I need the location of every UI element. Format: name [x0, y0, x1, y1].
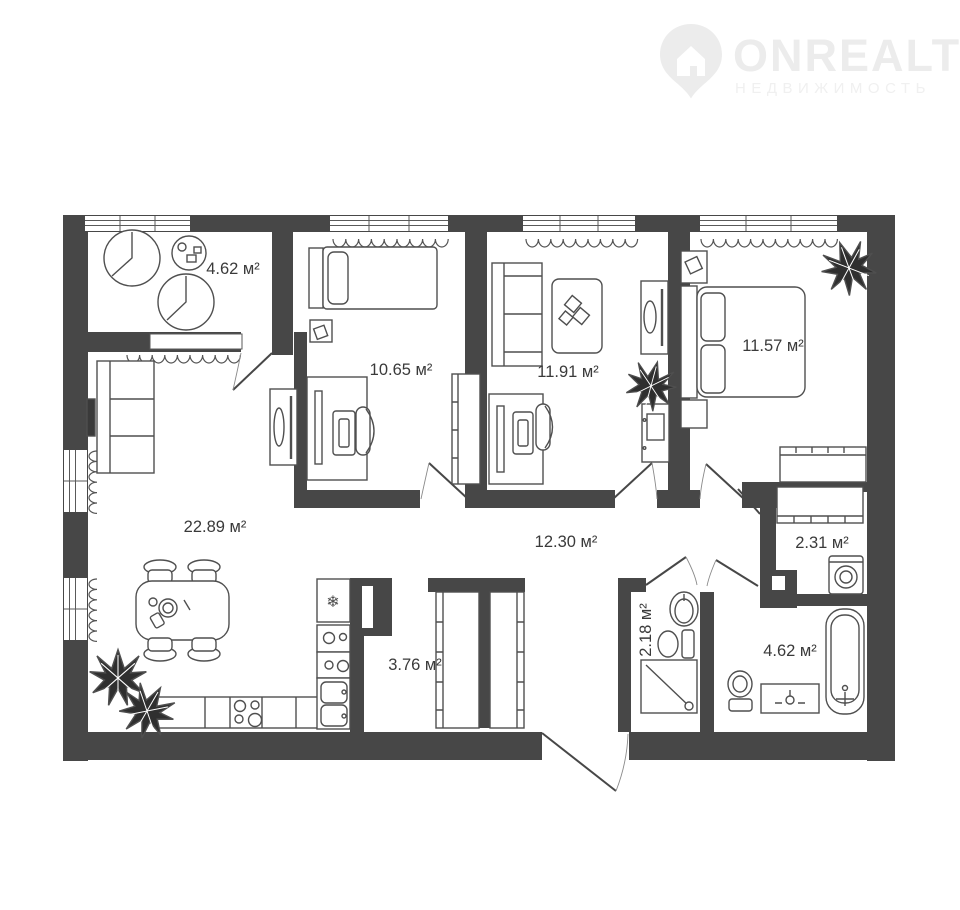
- room-label-bathroom: 4.62 м²: [763, 642, 817, 660]
- open-wardrobe: [780, 447, 866, 482]
- room-label-storage: 3.76 м²: [388, 656, 442, 674]
- window-bedroom-3: [700, 216, 837, 231]
- window-top-loggia: [85, 216, 190, 231]
- kitchen-sink: [317, 678, 350, 729]
- desk-chair: [356, 407, 370, 455]
- window-left-2: [64, 578, 87, 640]
- monitor: [315, 391, 322, 464]
- wall-notches: [362, 576, 785, 628]
- radiator-bedroom-1: [333, 239, 448, 247]
- wall-tv: [87, 399, 95, 436]
- room-label-bedroom-1: 10.65 м²: [370, 361, 433, 379]
- fridge: ❄: [317, 579, 350, 622]
- room-label-laundry: 2.31 м²: [795, 534, 849, 552]
- room-label-bedroom-2: 11.91 м²: [537, 363, 599, 381]
- window-bedroom-2: [523, 216, 635, 231]
- bathroom-furniture: [728, 609, 864, 714]
- kitchen-counter: [155, 697, 319, 728]
- open-closet: [777, 487, 863, 523]
- bedroom-3-furniture: [681, 251, 866, 482]
- pillow: [701, 345, 725, 393]
- window-bedroom-1: [330, 216, 448, 231]
- wardrobe: [490, 592, 524, 728]
- bed-headboard: [681, 286, 697, 398]
- burner: [249, 714, 262, 727]
- sofa: [97, 361, 154, 473]
- window-left-1: [64, 450, 87, 512]
- pillow: [328, 252, 348, 304]
- toilet: [658, 631, 678, 657]
- loggia-furniture: [104, 230, 214, 330]
- burner: [235, 701, 246, 712]
- monitor: [497, 406, 504, 472]
- room-label-wc: 2.18 м²: [637, 603, 655, 657]
- radiator-bedroom-3: [701, 239, 837, 247]
- toilet-tank: [682, 630, 694, 658]
- plant-icon: [90, 650, 147, 706]
- pillow: [701, 293, 725, 341]
- loggia-sill: [150, 334, 242, 349]
- dining-table: [136, 581, 229, 640]
- room-label-loggia: 4.62 м²: [206, 260, 260, 278]
- snowflake-icon: ❄: [326, 594, 339, 611]
- oven-column: [317, 625, 350, 678]
- room-label-bedroom-3: 11.57 м²: [742, 337, 804, 355]
- wardrobe: [452, 374, 480, 484]
- burner: [235, 715, 243, 723]
- logo-brand: ONREALT: [733, 30, 960, 81]
- floor-plan-canvas: ONREALT НЕДВИЖИМОСТЬ: [0, 0, 960, 910]
- radiator-left-2: [89, 579, 97, 641]
- dining-set: [136, 560, 229, 661]
- logo: ONREALT НЕДВИЖИМОСТЬ: [660, 24, 960, 99]
- room-label-hallway: 12.30 м²: [535, 533, 598, 551]
- room-label-kitchen-living: 22.89 м²: [184, 518, 247, 536]
- logo-tagline: НЕДВИЖИМОСТЬ: [735, 80, 931, 97]
- bed-headboard: [309, 248, 323, 308]
- burner: [251, 701, 259, 709]
- radiator-left-1: [89, 451, 97, 513]
- nightstand: [681, 400, 707, 428]
- radiator-bedroom-2: [526, 239, 638, 247]
- toilet-tank: [729, 699, 752, 711]
- floor-plan-page: ONREALT НЕДВИЖИМОСТЬ: [0, 0, 960, 910]
